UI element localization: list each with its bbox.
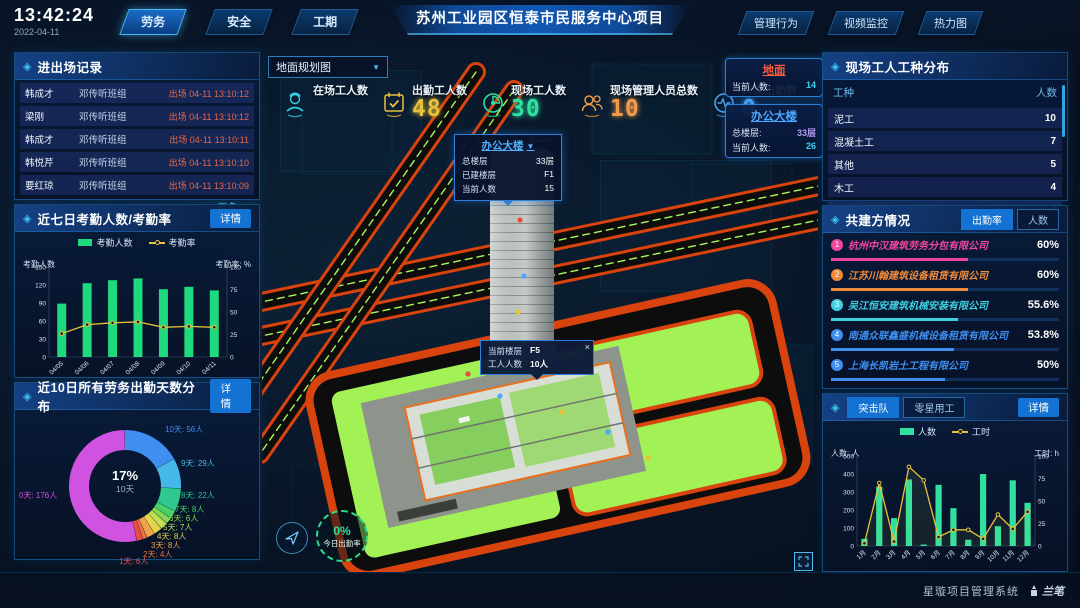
entry-team-name: 邓传听班组 bbox=[79, 86, 147, 100]
entry-exit-panel: ◈ 进出场记录 韩成才邓传听班组出场 04-11 13:10:12梁刚邓传听班组… bbox=[14, 52, 260, 200]
attendance-chart: 0306090120150025507510004/0504/0604/0704… bbox=[21, 260, 253, 382]
partner-row-top: 4南通众联鑫盛机械设备租赁有限公司53.8% bbox=[831, 327, 1059, 342]
assault-yright-label: 工时: h bbox=[1034, 448, 1059, 459]
ground-current-value: 14 bbox=[806, 80, 816, 93]
building-current-label: 当前人数: bbox=[732, 141, 771, 154]
floor-label: 当前楼层 bbox=[488, 345, 522, 357]
partner-name[interactable]: 吴江恒安建筑机械安装有限公司 bbox=[848, 297, 1019, 312]
stat-text: 出勤工人数48 bbox=[412, 82, 467, 120]
entry-event-time: 出场 04-11 13:10:11 bbox=[147, 133, 249, 146]
nav-tab-热力图[interactable]: 热力图 bbox=[918, 11, 984, 35]
panel-diamond-icon: ◈ bbox=[831, 213, 839, 226]
worker-types-table-head: 工种 人数 bbox=[823, 80, 1067, 105]
stat-现场管理人员总数: 现场管理人员总数10 bbox=[579, 82, 698, 123]
donut-slice-label: 10天: 56人 bbox=[165, 424, 203, 435]
today-attendance-pct: 0% bbox=[333, 524, 350, 538]
partner-progress-fill bbox=[831, 348, 954, 351]
nav-tab-管理行为[interactable]: 管理行为 bbox=[738, 11, 815, 35]
partner-row: 2江苏川翰建筑设备租赁有限公司60% bbox=[831, 267, 1059, 293]
svg-text:7月: 7月 bbox=[944, 549, 957, 562]
tip-floors-value: 33层 bbox=[536, 155, 554, 167]
partner-progress-fill bbox=[831, 318, 958, 321]
worker-type-count: 7 bbox=[1050, 136, 1056, 147]
svg-text:300: 300 bbox=[843, 489, 854, 496]
tip-people-label: 当前人数 bbox=[462, 183, 496, 195]
attendance-legend: 考勤人数考勤率 bbox=[15, 235, 259, 250]
svg-text:12月: 12月 bbox=[1015, 549, 1031, 564]
worker-type-col-header: 工种 bbox=[833, 85, 854, 100]
brand-text: 星璇项目管理系统 bbox=[923, 583, 1019, 599]
partner-row: 6江苏洁尚建筑安装工程有限公司35.4% bbox=[831, 387, 1059, 389]
legend-line-dot bbox=[155, 240, 160, 245]
donut-center-label: 10天 bbox=[90, 483, 160, 495]
entry-exit-row: 韩成才邓传听班组出场 04-11 13:10:12 bbox=[20, 83, 254, 103]
worker-type-count: 4 bbox=[1050, 182, 1056, 193]
nav-tab-label: 劳务 bbox=[141, 13, 165, 30]
entry-worker-name: 要红琼 bbox=[25, 178, 79, 192]
footer-logo-text: 兰笔 bbox=[1042, 583, 1064, 599]
calendar-check-icon bbox=[381, 90, 407, 123]
partners-tab-出勤率[interactable]: 出勤率 bbox=[961, 209, 1013, 230]
attendance-panel: ◈ 近七日考勤人数/考勤率 详情 考勤人数考勤率 考勤人数 考勤率: % 030… bbox=[14, 204, 260, 378]
legend-line-item: 考勤率 bbox=[149, 236, 196, 249]
partner-row: 5上海长凯岩土工程有限公司50% bbox=[831, 357, 1059, 383]
app-header: 13:42:24 2022-04-11 劳务安全工期 苏州工业园区恒泰市民服务中… bbox=[0, 0, 1080, 44]
entry-exit-row: 韩悦芹邓传听班组出场 04-11 13:10:10 bbox=[20, 152, 254, 172]
page-title: 苏州工业园区恒泰市民服务中心项目 bbox=[390, 5, 690, 35]
attendance-yleft-label: 考勤人数 bbox=[23, 259, 55, 270]
partner-progress-track bbox=[831, 318, 1059, 321]
people-icon bbox=[579, 90, 605, 123]
entry-event-time: 出场 04-11 13:10:10 bbox=[147, 156, 249, 169]
legend-line-dot bbox=[958, 429, 963, 434]
scrollbar[interactable] bbox=[1062, 85, 1065, 137]
entry-exit-row: 要红琼邓传听班组出场 04-11 13:10:09 bbox=[20, 175, 254, 195]
assault-chart-wrap: 人数: 人 工时: h 010020030040050002550751001月… bbox=[827, 449, 1063, 571]
entry-exit-row: 梁刚邓传听班组出场 04-11 13:10:12 bbox=[20, 106, 254, 126]
legend-bar-label: 人数 bbox=[918, 427, 936, 437]
legend-line-label: 工时 bbox=[972, 425, 990, 438]
svg-text:75: 75 bbox=[1038, 476, 1046, 483]
stat-出勤工人数: 出勤工人数48 bbox=[381, 82, 467, 123]
compass-icon bbox=[283, 529, 301, 547]
clock: 13:42:24 2022-04-11 bbox=[14, 5, 94, 37]
entry-team-name: 邓传听班组 bbox=[79, 178, 147, 192]
panel-diamond-icon: ◈ bbox=[831, 401, 839, 414]
entry-worker-name: 韩悦芹 bbox=[25, 155, 79, 169]
legend-bar-item: 人数 bbox=[900, 425, 936, 438]
entry-worker-name: 韩成才 bbox=[25, 132, 79, 146]
partner-progress-fill bbox=[831, 288, 968, 291]
svg-text:5月: 5月 bbox=[914, 549, 927, 562]
assault-panel: ◈ 突击队零星用工 详情 人数工时 人数: 人 工时: h 0100200300… bbox=[822, 393, 1068, 572]
svg-text:6月: 6月 bbox=[929, 549, 942, 562]
panel-diamond-icon: ◈ bbox=[23, 60, 31, 73]
worker-type-row: 混凝土工7 bbox=[828, 131, 1062, 151]
attendance-detail-button[interactable]: 详情 bbox=[210, 209, 251, 228]
legend-line-swatch bbox=[149, 242, 165, 244]
partner-progress-track bbox=[831, 258, 1059, 261]
tip-built-label: 已建楼层 bbox=[462, 169, 496, 181]
gauge-icon bbox=[480, 90, 506, 123]
nav-tab-视频监控[interactable]: 视频监控 bbox=[828, 11, 905, 35]
partner-progress-track bbox=[831, 378, 1059, 381]
svg-text:1月: 1月 bbox=[855, 549, 868, 562]
fullscreen-button[interactable] bbox=[794, 552, 813, 571]
assault-detail-button[interactable]: 详情 bbox=[1018, 398, 1059, 417]
svg-text:04/07: 04/07 bbox=[99, 360, 116, 376]
nav-tab-label: 安全 bbox=[227, 13, 251, 30]
donut-slice-label: 8天: 22人 bbox=[181, 490, 215, 501]
legend-line-label: 考勤率 bbox=[169, 236, 196, 249]
building-tooltip-title-text: 办公大楼 bbox=[482, 140, 524, 152]
partner-row: 3吴江恒安建筑机械安装有限公司55.6% bbox=[831, 297, 1059, 323]
svg-text:04/09: 04/09 bbox=[150, 360, 167, 376]
nav-tab-工期[interactable]: 工期 bbox=[291, 9, 358, 35]
tip-floors-label: 总楼层 bbox=[462, 155, 488, 167]
date-text: 2022-04-11 bbox=[14, 27, 94, 37]
worker-type-name: 其他 bbox=[834, 157, 854, 172]
legend-line-swatch bbox=[952, 431, 968, 433]
svg-text:90: 90 bbox=[39, 300, 47, 307]
chevron-down-icon: ▼ bbox=[372, 63, 380, 72]
map-layer-dropdown[interactable]: 地面规划图 ▼ bbox=[268, 56, 388, 78]
stat-label: 在场工人数 bbox=[313, 82, 368, 98]
nav-tab-安全[interactable]: 安全 bbox=[205, 9, 272, 35]
donut-center-pct: 17% bbox=[90, 468, 160, 483]
worker-types-title: 现场工人工种分布 bbox=[845, 57, 949, 76]
nav-tabs-left: 劳务安全工期 bbox=[124, 9, 354, 35]
svg-text:04/08: 04/08 bbox=[125, 360, 142, 376]
assault-yleft-label: 人数: 人 bbox=[831, 448, 859, 459]
svg-text:0: 0 bbox=[42, 354, 46, 361]
partner-row-top: 6江苏洁尚建筑安装工程有限公司35.4% bbox=[831, 387, 1059, 389]
partner-pct: 60% bbox=[1037, 269, 1059, 281]
svg-text:60: 60 bbox=[39, 318, 47, 325]
entry-event-time: 出场 04-11 13:10:12 bbox=[147, 110, 249, 123]
attendance-header: ◈ 近七日考勤人数/考勤率 详情 bbox=[15, 205, 259, 232]
worker-type-row: 泥工10 bbox=[828, 108, 1062, 128]
svg-text:04/06: 04/06 bbox=[74, 360, 91, 376]
site-parcel bbox=[305, 278, 812, 572]
panel-diamond-icon: ◈ bbox=[23, 390, 31, 403]
entry-event-time: 出场 04-11 13:10:09 bbox=[147, 179, 249, 192]
partner-name[interactable]: 杭州中汉建筑劳务分包有限公司 bbox=[848, 237, 1028, 252]
partner-progress-fill bbox=[831, 258, 968, 261]
distribution-donut: 17% 10天 10天: 56人9天: 29人8天: 22人7天: 8人6天: … bbox=[15, 410, 259, 558]
partners-tabs: 出勤率人数 bbox=[961, 209, 1059, 230]
today-attendance-badge: 0% 今日出勤率 bbox=[316, 510, 368, 562]
partner-row-top: 2江苏川翰建筑设备租赁有限公司60% bbox=[831, 267, 1059, 282]
partner-rank-badge: 2 bbox=[831, 269, 843, 281]
stat-现场工人数: 现场工人数30 bbox=[480, 82, 566, 123]
assault-header: ◈ 突击队零星用工 详情 bbox=[823, 394, 1067, 421]
partner-pct: 35.4% bbox=[1028, 389, 1059, 390]
donut-center: 17% 10天 bbox=[90, 468, 160, 495]
workers-label: 工人人数 bbox=[488, 358, 522, 370]
floor-value: F5 bbox=[530, 345, 540, 357]
compass-control[interactable] bbox=[276, 522, 308, 554]
ground-info-panel: 地面 当前人数: 14 bbox=[725, 58, 823, 97]
map-layer-dropdown-value: 地面规划图 bbox=[276, 59, 331, 75]
nav-tabs-right: 管理行为视频监控热力图 bbox=[742, 11, 979, 35]
svg-text:50: 50 bbox=[230, 309, 238, 316]
svg-text:50: 50 bbox=[1038, 498, 1046, 505]
svg-text:04/10: 04/10 bbox=[175, 360, 192, 376]
worker-count-col-header: 人数 bbox=[1036, 85, 1057, 100]
attendance-yright-label: 考勤率: % bbox=[215, 259, 251, 270]
today-attendance-label: 今日出勤率 bbox=[323, 538, 361, 549]
stat-value: 30 bbox=[511, 98, 566, 120]
svg-text:400: 400 bbox=[843, 471, 854, 478]
svg-text:8月: 8月 bbox=[959, 549, 972, 562]
time-text: 13:42:24 bbox=[14, 5, 94, 26]
workers-value: 10人 bbox=[530, 358, 548, 370]
stat-text: 在场工人数 bbox=[313, 82, 368, 98]
partner-row: 1杭州中汉建筑劳务分包有限公司60% bbox=[831, 237, 1059, 263]
partner-row-top: 3吴江恒安建筑机械安装有限公司55.6% bbox=[831, 297, 1059, 312]
partner-pct: 50% bbox=[1037, 359, 1059, 371]
building-floors-label: 总楼层: bbox=[732, 126, 762, 139]
assault-chart: 010020030040050002550751001月2月3月4月5月6月7月… bbox=[829, 449, 1061, 571]
donut-slice-label: 9天: 29人 bbox=[181, 458, 215, 469]
worker-icon bbox=[282, 90, 308, 123]
partner-rank-badge: 4 bbox=[831, 329, 843, 341]
site-stats-row: 在场工人数出勤工人数48现场工人数30现场管理人员总数10异常出勤数0 bbox=[282, 82, 797, 123]
building-floors-value: 33层 bbox=[797, 126, 816, 139]
building-panel-title[interactable]: 办公大楼 bbox=[732, 108, 816, 124]
donut-slice-label: 1天: 6人 bbox=[119, 556, 148, 567]
worker-type-row: 其他5 bbox=[828, 154, 1062, 174]
partner-row: 4南通众联鑫盛机械设备租赁有限公司53.8% bbox=[831, 327, 1059, 353]
entry-exit-title: 进出场记录 bbox=[37, 57, 102, 76]
partner-rank-badge: 1 bbox=[831, 239, 843, 251]
distribution-panel: ◈ 近10日所有劳务出勤天数分布 详情 17% 10天 10天: 56人9天: … bbox=[14, 382, 260, 560]
svg-text:120: 120 bbox=[35, 282, 46, 289]
partner-row-top: 5上海长凯岩土工程有限公司50% bbox=[831, 357, 1059, 372]
tip-people-value: 15 bbox=[545, 183, 554, 195]
partner-progress-track bbox=[831, 348, 1059, 351]
svg-text:0: 0 bbox=[850, 543, 854, 550]
svg-text:2月: 2月 bbox=[870, 549, 883, 562]
svg-text:100: 100 bbox=[843, 525, 854, 532]
partner-name[interactable]: 江苏川翰建筑设备租赁有限公司 bbox=[848, 267, 1028, 282]
footer-logo: 兰笔 bbox=[1029, 583, 1064, 599]
app-footer: 星璇项目管理系统 兰笔 bbox=[0, 572, 1080, 608]
svg-text:3月: 3月 bbox=[885, 549, 898, 562]
ground-current-label: 当前人数: bbox=[732, 80, 771, 93]
svg-text:04/11: 04/11 bbox=[201, 360, 218, 376]
partner-pct: 60% bbox=[1037, 239, 1059, 251]
partner-rank-badge: 6 bbox=[831, 389, 843, 390]
worker-type-name: 木工 bbox=[834, 180, 854, 195]
entry-exit-header: ◈ 进出场记录 bbox=[15, 53, 259, 80]
svg-text:200: 200 bbox=[843, 507, 854, 514]
entry-worker-name: 梁刚 bbox=[25, 109, 79, 123]
fullscreen-icon bbox=[798, 556, 809, 567]
stat-text: 现场管理人员总数10 bbox=[610, 82, 698, 120]
partner-pct: 55.6% bbox=[1028, 299, 1059, 311]
svg-text:4月: 4月 bbox=[899, 549, 912, 562]
nav-tab-label: 工期 bbox=[313, 13, 337, 30]
tooltip-caret-icon[interactable]: ▼ bbox=[527, 142, 535, 151]
worker-types-header: ◈ 现场工人工种分布 bbox=[823, 53, 1067, 80]
stat-text: 现场工人数30 bbox=[511, 82, 566, 120]
svg-text:9月: 9月 bbox=[974, 549, 987, 562]
partner-name[interactable]: 上海长凯岩土工程有限公司 bbox=[848, 357, 1028, 372]
legend-bar-swatch bbox=[900, 428, 914, 435]
nav-tab-label: 视频监控 bbox=[844, 15, 888, 31]
entry-team-name: 邓传听班组 bbox=[79, 155, 147, 169]
assault-legend: 人数工时 bbox=[823, 424, 1067, 439]
panel-diamond-icon: ◈ bbox=[23, 212, 31, 225]
partners-header: ◈ 共建方情况 出勤率人数 bbox=[823, 206, 1067, 233]
partner-name[interactable]: 江苏洁尚建筑安装工程有限公司 bbox=[848, 387, 1019, 389]
partners-panel: ◈ 共建方情况 出勤率人数 1杭州中汉建筑劳务分包有限公司60%2江苏川翰建筑设… bbox=[822, 205, 1068, 389]
donut-slice-label: 0天: 176人 bbox=[19, 490, 57, 501]
legend-bar-label: 考勤人数 bbox=[96, 238, 132, 248]
worker-type-count: 10 bbox=[1045, 113, 1056, 124]
stat-value: 48 bbox=[412, 98, 467, 120]
worker-types-table: 泥工10混凝土工7其他5木工4塔司4 bbox=[823, 108, 1067, 220]
building-tooltip: 办公大楼▼ 总楼层33层 已建楼层F1 当前人数15 bbox=[454, 134, 562, 201]
legend-bar-item: 考勤人数 bbox=[78, 236, 132, 249]
stat-value: 10 bbox=[610, 98, 698, 120]
svg-text:11月: 11月 bbox=[1001, 549, 1016, 564]
partner-progress-fill bbox=[831, 378, 945, 381]
nav-tab-label: 管理行为 bbox=[754, 15, 798, 31]
assault-tab-突击队[interactable]: 突击队 bbox=[847, 397, 899, 418]
legend-bar-swatch bbox=[78, 239, 92, 246]
svg-text:25: 25 bbox=[1038, 521, 1046, 528]
nav-tab-label: 热力图 bbox=[934, 15, 967, 31]
partner-rank-badge: 3 bbox=[831, 299, 843, 311]
entry-worker-name: 韩成才 bbox=[25, 86, 79, 100]
partner-pct: 53.8% bbox=[1028, 329, 1059, 341]
partners-tab-人数[interactable]: 人数 bbox=[1017, 209, 1059, 230]
entry-team-name: 邓传听班组 bbox=[79, 109, 147, 123]
partner-progress-track bbox=[831, 288, 1059, 291]
entry-exit-list: 韩成才邓传听班组出场 04-11 13:10:12梁刚邓传听班组出场 04-11… bbox=[15, 83, 259, 195]
entry-exit-row: 韩成才邓传听班组出场 04-11 13:10:11 bbox=[20, 129, 254, 149]
worker-types-panel: ◈ 现场工人工种分布 工种 人数 泥工10混凝土工7其他5木工4塔司4 bbox=[822, 52, 1068, 201]
distribution-detail-button[interactable]: 详情 bbox=[210, 379, 251, 413]
partner-row-top: 1杭州中汉建筑劳务分包有限公司60% bbox=[831, 237, 1059, 252]
worker-type-row: 木工4 bbox=[828, 177, 1062, 197]
assault-tabs: 突击队零星用工 bbox=[847, 397, 965, 418]
svg-text:04/05: 04/05 bbox=[48, 360, 65, 376]
tower-logo-icon bbox=[1029, 585, 1039, 597]
worker-type-name: 混凝土工 bbox=[834, 134, 874, 149]
partners-title: 共建方情况 bbox=[845, 210, 910, 229]
svg-text:75: 75 bbox=[230, 287, 238, 294]
attendance-title: 近七日考勤人数/考勤率 bbox=[37, 209, 171, 228]
building-current-value: 26 bbox=[806, 141, 816, 154]
svg-text:0: 0 bbox=[230, 354, 234, 361]
svg-text:25: 25 bbox=[230, 332, 238, 339]
legend-line-item: 工时 bbox=[952, 425, 990, 438]
svg-text:0: 0 bbox=[1038, 543, 1042, 550]
building-info-panel: 办公大楼 总楼层: 33层 当前人数: 26 bbox=[725, 104, 823, 158]
floor-tooltip: × 当前楼层F5 工人人数10人 bbox=[480, 340, 594, 375]
worker-type-count: 5 bbox=[1050, 159, 1056, 170]
svg-text:10月: 10月 bbox=[986, 549, 1002, 564]
ground-panel-title[interactable]: 地面 bbox=[732, 62, 816, 78]
partners-list: 1杭州中汉建筑劳务分包有限公司60%2江苏川翰建筑设备租赁有限公司60%3吴江恒… bbox=[823, 237, 1067, 389]
nav-tab-劳务[interactable]: 劳务 bbox=[119, 9, 186, 35]
attendance-chart-wrap: 考勤人数 考勤率: % 0306090120150025507510004/05… bbox=[19, 260, 255, 382]
worker-type-name: 泥工 bbox=[834, 111, 854, 126]
stat-在场工人数: 在场工人数 bbox=[282, 82, 368, 123]
distribution-header: ◈ 近10日所有劳务出勤天数分布 详情 bbox=[15, 383, 259, 410]
entry-event-time: 出场 04-11 13:10:12 bbox=[147, 87, 249, 100]
partner-rank-badge: 5 bbox=[831, 359, 843, 371]
map-area: 地面规划图 ▼ 在场工人数出勤工人数48现场工人数30现场管理人员总数10异常出… bbox=[262, 44, 818, 572]
panel-diamond-icon: ◈ bbox=[831, 60, 839, 73]
tip-built-value: F1 bbox=[544, 169, 554, 181]
dashboard-root: 13:42:24 2022-04-11 劳务安全工期 苏州工业园区恒泰市民服务中… bbox=[0, 0, 1080, 608]
svg-text:30: 30 bbox=[39, 336, 47, 343]
close-icon[interactable]: × bbox=[585, 342, 590, 352]
assault-tab-零星用工[interactable]: 零星用工 bbox=[903, 397, 965, 418]
building-tooltip-title[interactable]: 办公大楼▼ bbox=[462, 138, 554, 153]
partner-name[interactable]: 南通众联鑫盛机械设备租赁有限公司 bbox=[848, 327, 1019, 342]
entry-team-name: 邓传听班组 bbox=[79, 132, 147, 146]
